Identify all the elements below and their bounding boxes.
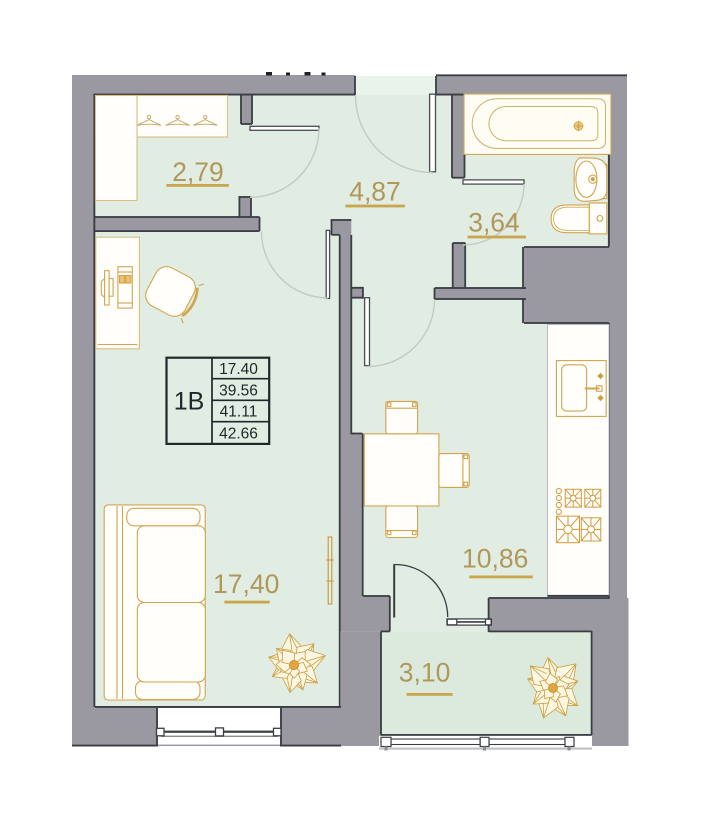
svg-text:2,79: 2,79	[172, 157, 224, 187]
svg-text:17,40: 17,40	[213, 569, 279, 599]
svg-text:17.40: 17.40	[219, 361, 258, 378]
svg-text:4,87: 4,87	[349, 177, 401, 207]
svg-text:39.56: 39.56	[219, 382, 258, 399]
svg-text:42.66: 42.66	[219, 425, 258, 442]
svg-text:10,86: 10,86	[462, 544, 528, 574]
svg-text:3,64: 3,64	[468, 208, 520, 238]
svg-text:41.11: 41.11	[220, 403, 258, 420]
svg-text:3,10: 3,10	[399, 657, 451, 687]
svg-text:1B: 1B	[174, 388, 205, 416]
